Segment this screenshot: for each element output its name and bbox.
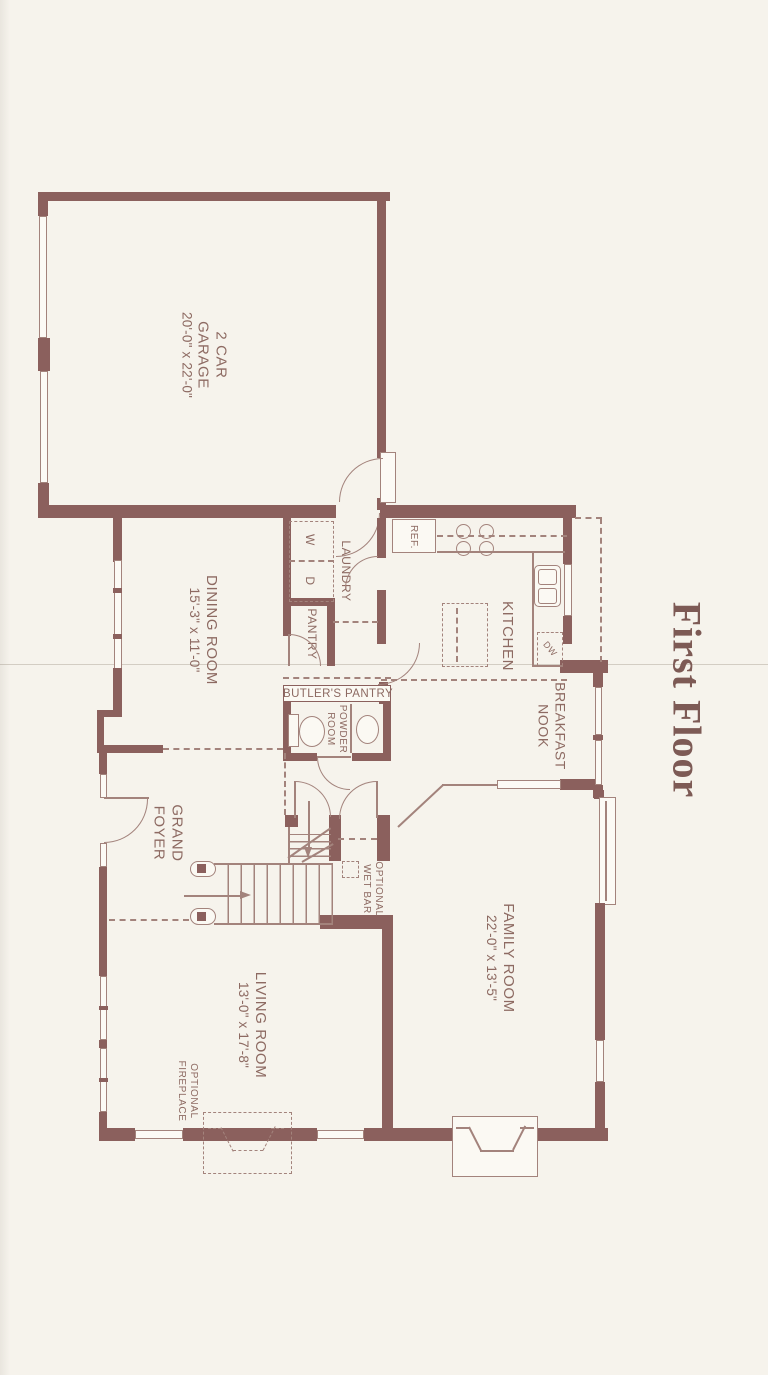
room-name: KITCHEN [498,601,516,671]
room-name: NOOK [535,682,552,770]
butlers-pantry-label: BUTLER'S PANTRY [283,688,391,700]
wall-segment [380,505,576,518]
appliance-label: REF. [407,525,419,549]
firebox-bottom [233,1150,263,1151]
stair-down-arrow-line [308,801,310,847]
door-leaf [317,756,351,758]
room-dims: 13'-0" x 17'-8" [235,972,251,1079]
room-name: BREAKFAST [552,682,569,770]
garage-door-opening [39,216,47,338]
window [596,1040,604,1082]
wall-segment [99,1040,107,1048]
grand-foyer-label: GRAND FOYER [150,804,185,861]
stair-down-arrowhead [304,847,312,858]
wall-segment [593,673,603,687]
cooktop-burner [479,541,494,556]
wall-segment [560,779,595,790]
wall-segment [327,606,335,666]
projection-dashed-line [575,517,602,519]
wall-segment [99,1128,135,1141]
door-leaf [288,634,290,666]
room-name: OPTIONAL [372,861,384,916]
wall-segment [383,702,391,760]
wall-segment [377,590,386,644]
window [317,1130,364,1139]
wall-segment [377,815,390,861]
wall-segment [38,192,390,201]
wall-segment [99,867,107,976]
washer-dryer-divider [289,560,334,562]
wet-bar-sink [342,861,359,878]
door-swing-arc [339,458,383,502]
wall-segment [377,199,386,458]
window [595,740,602,785]
sidelight-window [100,774,107,798]
room-name: LIVING ROOM [251,972,269,1079]
floor-plan-sheet: 2 CAR GARAGE 20'-0" x 22'-0" DINING ROOM… [0,0,768,1375]
door-swing-arc [295,781,331,817]
front-door-swing-arc [104,799,148,843]
stair-stringer [214,923,333,925]
wet-bar-counter-dashed [338,838,377,840]
room-name: FIREPLACE [175,1061,187,1122]
ceiling-dashed-line [381,679,567,681]
breakfast-nook-label: BREAKFAST NOOK [535,682,568,770]
dining-room-label: DINING ROOM 15'-3" x 11'-0" [186,575,220,685]
window [114,560,122,670]
wall-segment [38,505,336,518]
counter-edge [437,551,565,553]
appliance-label: D [303,576,317,585]
wall-segment [377,518,386,558]
angled-archway-line [397,784,444,828]
wall-segment [38,199,48,216]
room-name: GARAGE [194,312,212,398]
page-edge-shading [0,0,10,1375]
wall-segment [352,753,391,761]
island-center-line [456,608,458,662]
dryer-label: D [303,576,317,585]
room-name: POWDER [336,705,348,754]
powder-room-label: POWDER ROOM [324,705,348,754]
stair-newel-post [197,864,206,873]
front-door-leaf [104,797,149,799]
door-swing-arc [317,757,350,790]
stair-up-arrow-line [184,895,240,897]
appliance-label: W [303,534,317,546]
window [595,687,602,735]
toilet-tank [288,714,299,747]
projection-dashed-line [600,518,602,662]
sink-basin [538,588,557,604]
wall-segment [99,1112,107,1128]
room-name: 2 CAR [212,312,230,398]
powder-sink [356,715,379,744]
garage-door-opening [40,371,48,483]
opening-dashed-line [163,748,283,750]
room-name: GRAND [168,804,186,861]
room-name: FAMILY ROOM [499,903,517,1012]
window [497,780,561,789]
room-name: WET BAR [360,861,372,916]
wall-segment [595,903,605,1040]
kitchen-island [442,603,488,667]
window-mullion [99,1006,108,1010]
opening-dashed-line [284,753,286,815]
window [135,1130,183,1139]
room-dims: 15'-3" x 11'-0" [186,575,202,685]
sheet-title: First Floor [664,602,711,799]
wall-segment [113,668,122,713]
counter-dashed-line [283,677,391,679]
stair-up-arrowhead [240,891,251,899]
living-room-label: LIVING ROOM 13'-0" x 17'-8" [235,972,269,1079]
opening-dashed-line [109,919,189,921]
wet-bar-label: OPTIONAL WET BAR [360,861,384,916]
room-name: FOYER [150,804,168,861]
partition-line [350,704,352,753]
room-dims: 22'-0" x 13'-5" [483,903,499,1012]
optional-fireplace-label: OPTIONAL FIREPLACE [175,1061,199,1122]
window-mullion [113,634,122,639]
sliding-door-track [605,801,607,901]
firebox-bottom [480,1150,514,1152]
wall-segment [38,338,50,371]
stair-newel-post [197,912,206,921]
room-name: OPTIONAL [187,1061,199,1122]
wall-segment [563,616,572,644]
window-mullion [99,1078,108,1082]
refrigerator-label: REF. [407,525,419,549]
washer-label: W [303,534,317,546]
wall-segment [563,518,572,564]
cooktop-burner [456,541,471,556]
door-leaf [376,781,378,818]
toilet-bowl [299,716,325,747]
optional-fireplace-outline [203,1112,292,1174]
sliding-door [599,797,616,905]
room-name: ROOM [324,705,336,754]
shelf-dashed-line [333,621,378,623]
sink-basin [538,569,557,585]
archway-line [442,784,498,786]
wall-segment [113,518,122,562]
window [564,564,572,616]
room-dims: 20'-0" x 22'-0" [178,312,194,398]
kitchen-label: KITCHEN [498,601,516,671]
wall-segment [99,750,107,774]
sidelight-window [100,843,107,867]
wall-segment [382,928,393,1128]
wall-segment [283,606,291,636]
garage-label: 2 CAR GARAGE 20'-0" x 22'-0" [178,312,229,398]
fireplace-hearth-line [208,1128,221,1129]
family-room-label: FAMILY ROOM 22'-0" x 13'-5" [483,903,517,1012]
door-leaf [294,781,296,818]
stair-treads [216,865,333,923]
room-name: DINING ROOM [202,575,220,685]
upper-cabinet-dashed-line [437,535,567,537]
wall-segment [283,753,317,761]
window-mullion [113,588,122,593]
